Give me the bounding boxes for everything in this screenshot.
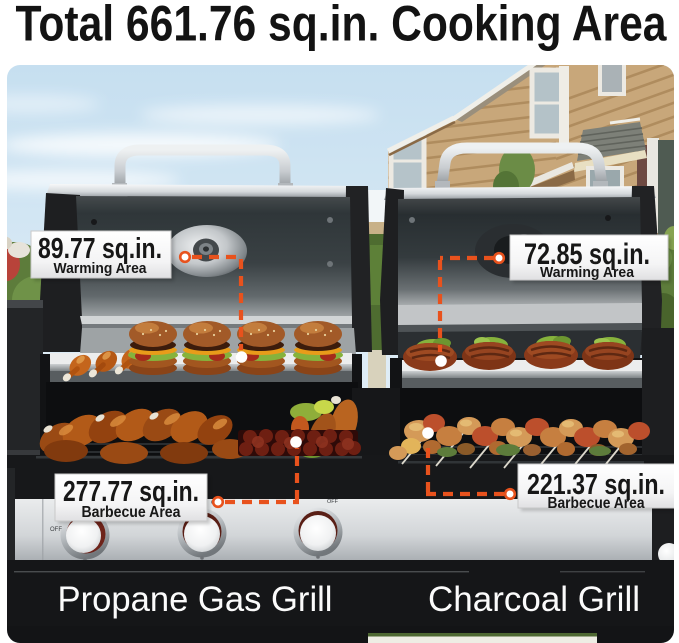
svg-text:Charcoal Grill: Charcoal Grill [428, 580, 640, 619]
svg-text:Total 661.76 sq.in. Cooking Ar: Total 661.76 sq.in. Cooking Area [16, 0, 668, 52]
svg-text:Warming Area: Warming Area [54, 260, 148, 277]
svg-text:Barbecue Area: Barbecue Area [82, 504, 181, 521]
svg-text:OFF: OFF [50, 527, 62, 533]
svg-text:Warming Area: Warming Area [540, 264, 635, 281]
svg-text:Propane Gas Grill: Propane Gas Grill [58, 580, 333, 619]
svg-text:Barbecue Area: Barbecue Area [548, 495, 645, 512]
svg-text:OFF: OFF [327, 499, 339, 505]
